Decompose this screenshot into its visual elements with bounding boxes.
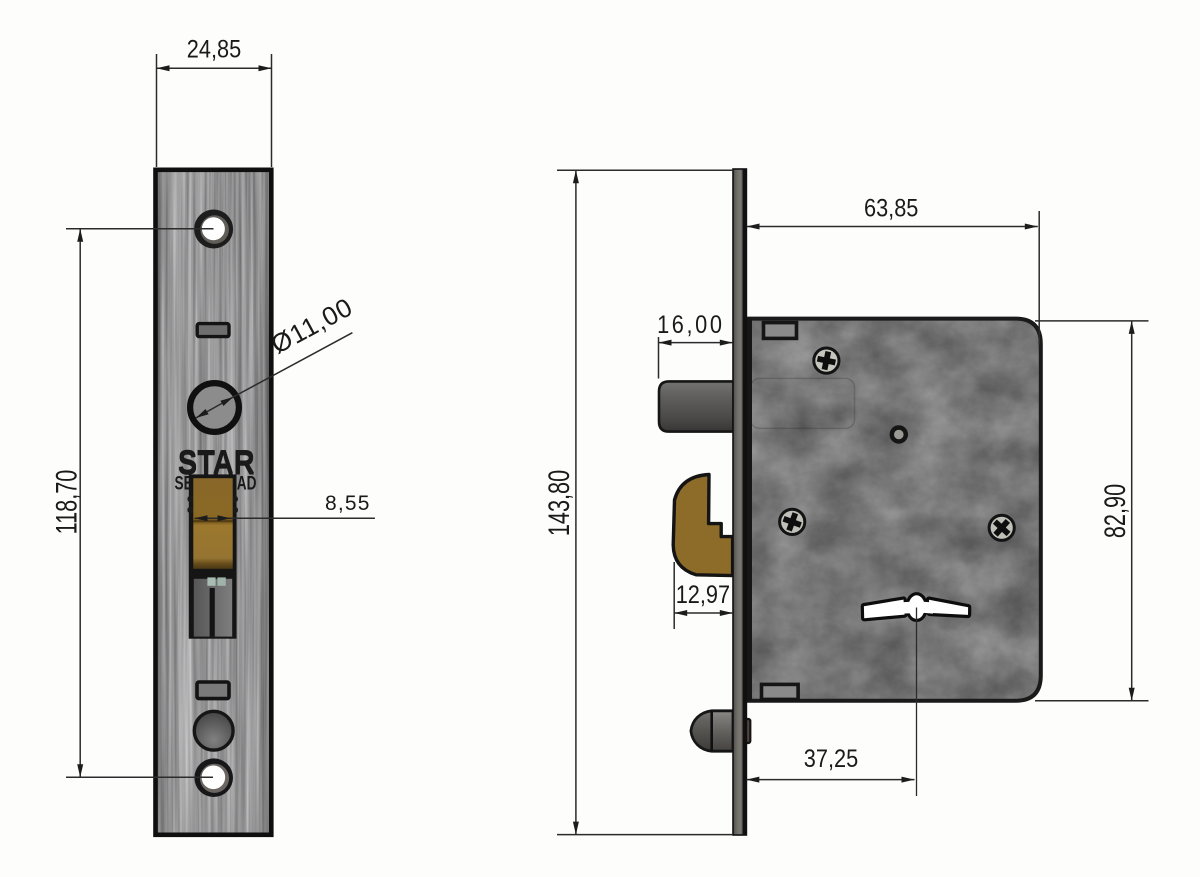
svg-text:12,97: 12,97 [676, 581, 730, 609]
svg-text:8,55: 8,55 [325, 492, 371, 515]
svg-text:24,85: 24,85 [187, 35, 241, 63]
svg-text:143,80: 143,80 [544, 470, 576, 536]
svg-text:82,90: 82,90 [1100, 484, 1132, 538]
svg-text:118,70: 118,70 [51, 470, 83, 535]
svg-text:63,85: 63,85 [864, 194, 918, 222]
svg-text:37,25: 37,25 [804, 745, 858, 773]
svg-text:16,00: 16,00 [657, 311, 724, 339]
